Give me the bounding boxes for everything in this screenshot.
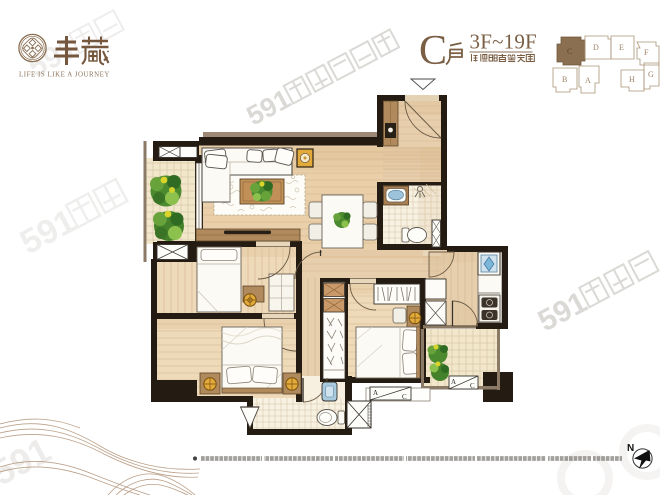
svg-text:H: H bbox=[629, 75, 635, 84]
svg-text:A: A bbox=[585, 76, 591, 85]
svg-text:E: E bbox=[619, 43, 624, 52]
svg-text:G: G bbox=[648, 70, 654, 79]
svg-text:D: D bbox=[593, 43, 599, 52]
svg-text:3F~19F: 3F~19F bbox=[470, 30, 537, 54]
svg-text:B: B bbox=[562, 75, 567, 84]
svg-text:C: C bbox=[567, 47, 572, 56]
svg-text:F: F bbox=[644, 48, 649, 57]
svg-text:N: N bbox=[627, 443, 634, 454]
svg-text:LIFE IS LIKE A JOURNEY: LIFE IS LIKE A JOURNEY bbox=[19, 72, 110, 79]
svg-text:C: C bbox=[419, 28, 447, 74]
